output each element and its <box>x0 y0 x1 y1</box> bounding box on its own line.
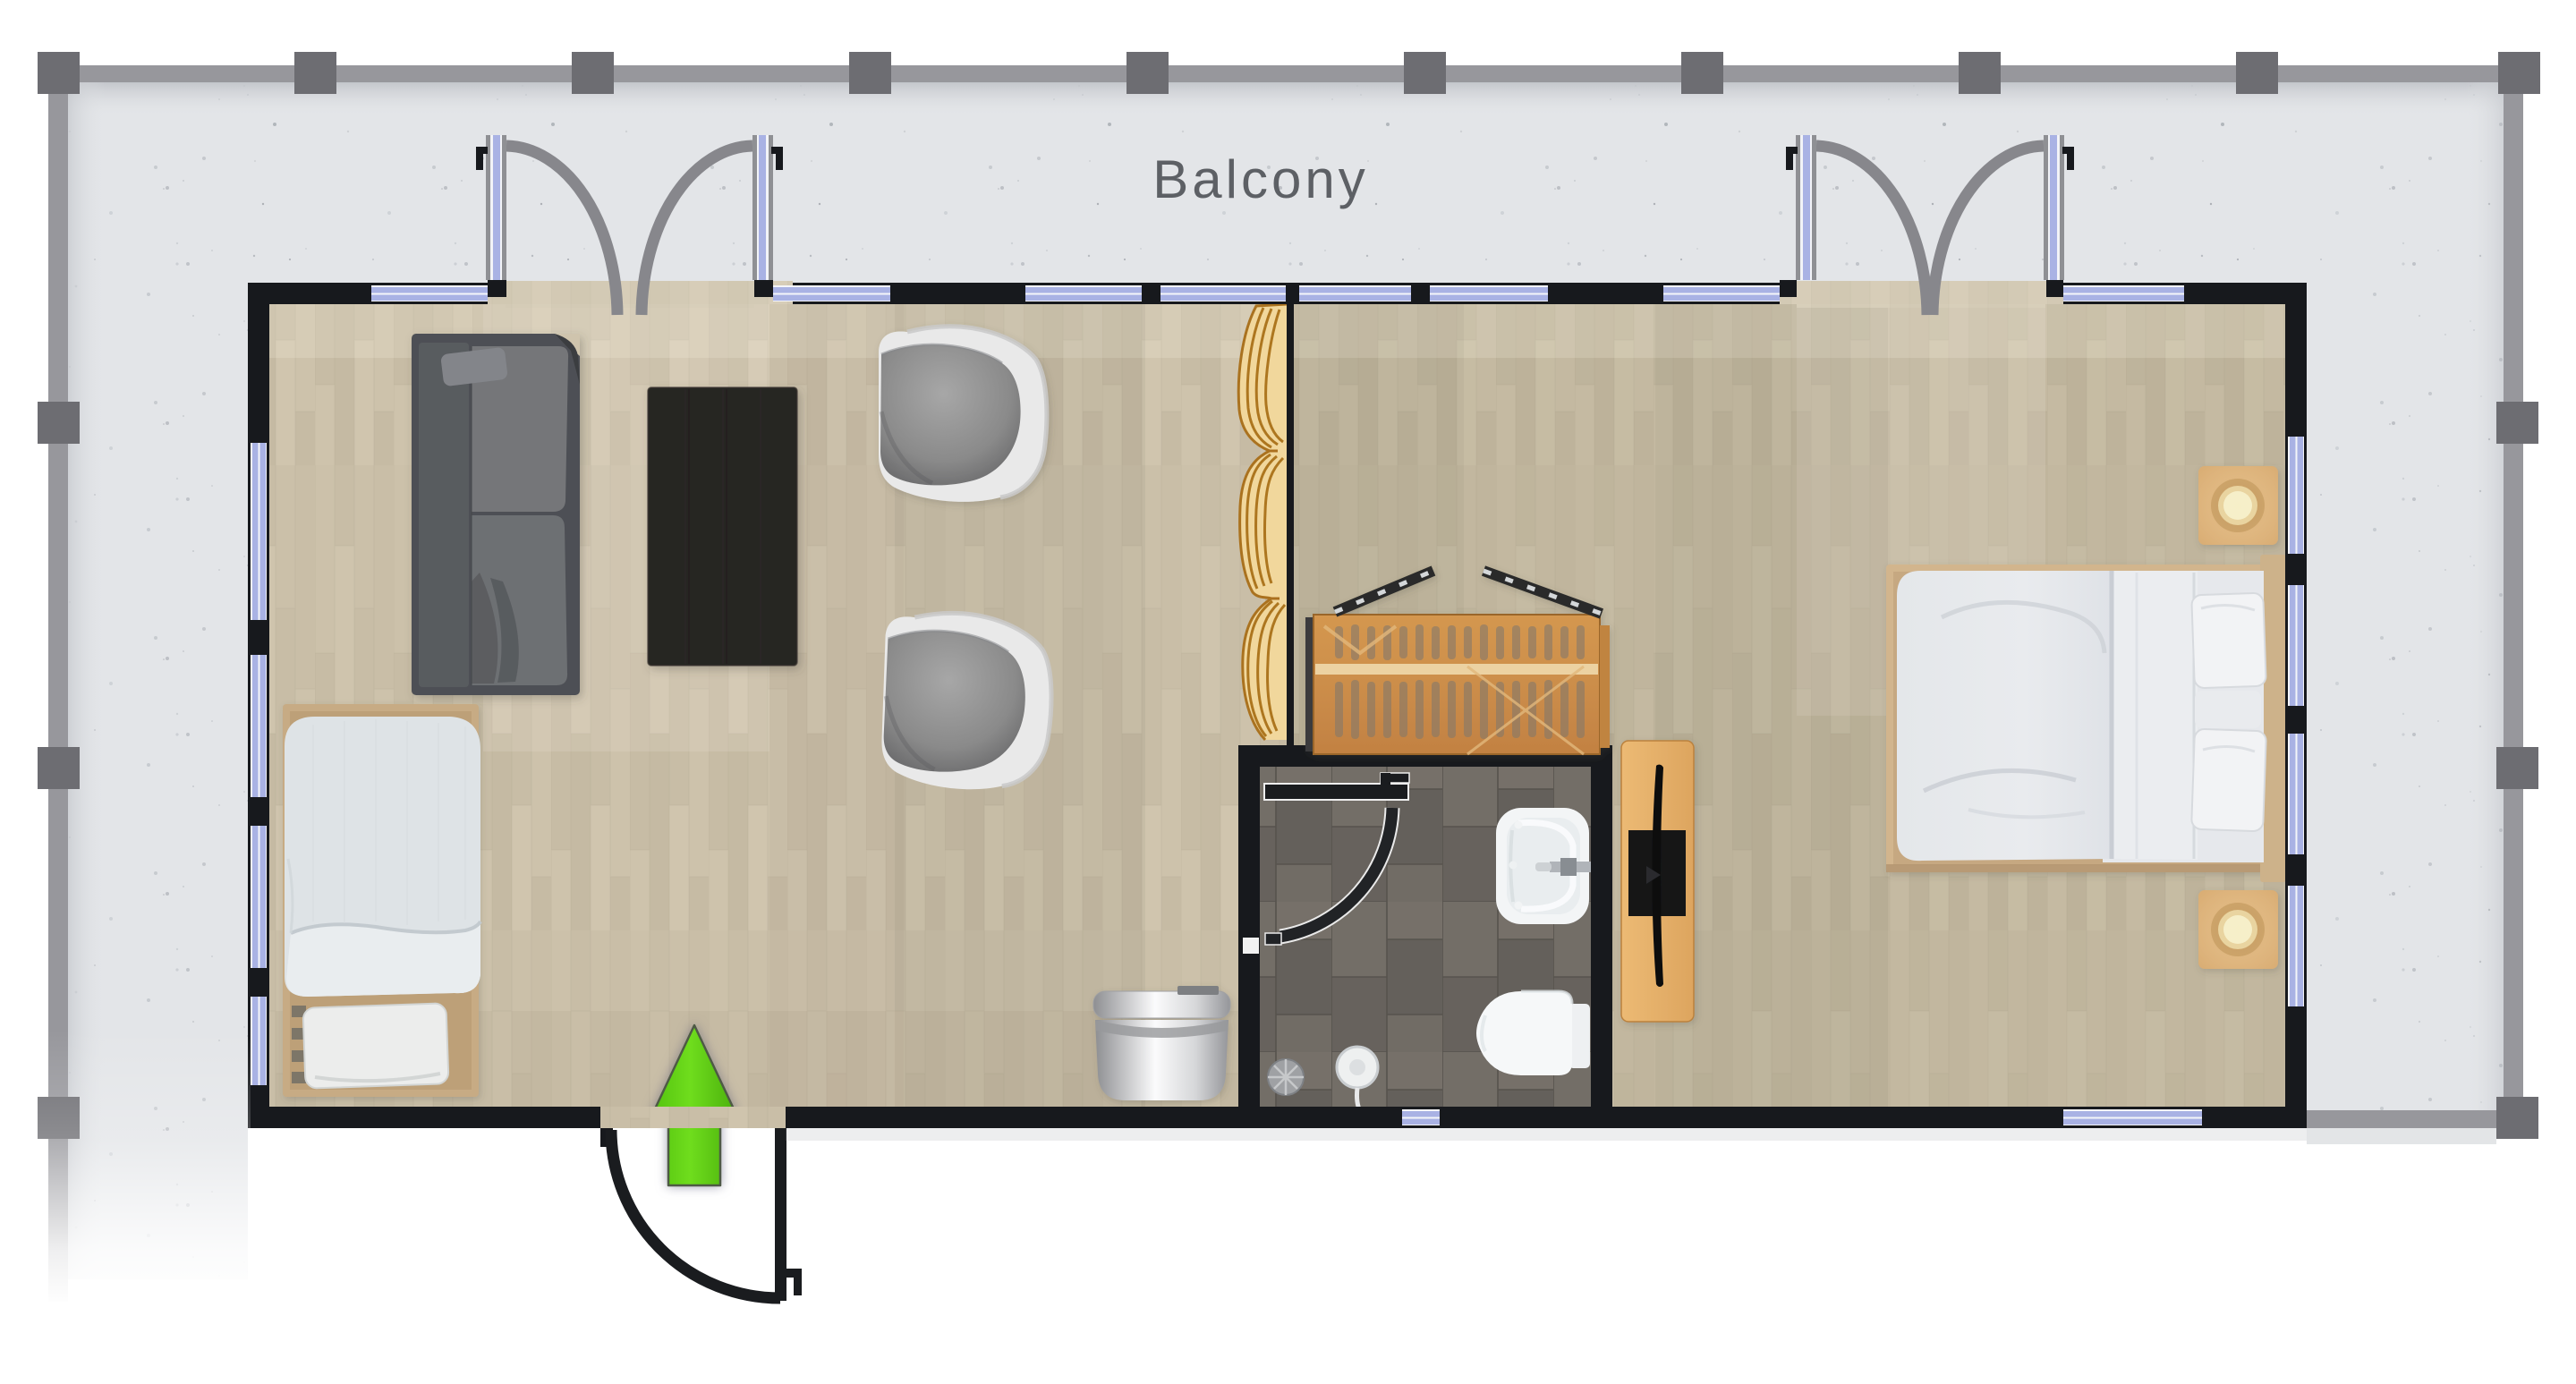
svg-text:Balcony: Balcony <box>1152 149 1368 209</box>
